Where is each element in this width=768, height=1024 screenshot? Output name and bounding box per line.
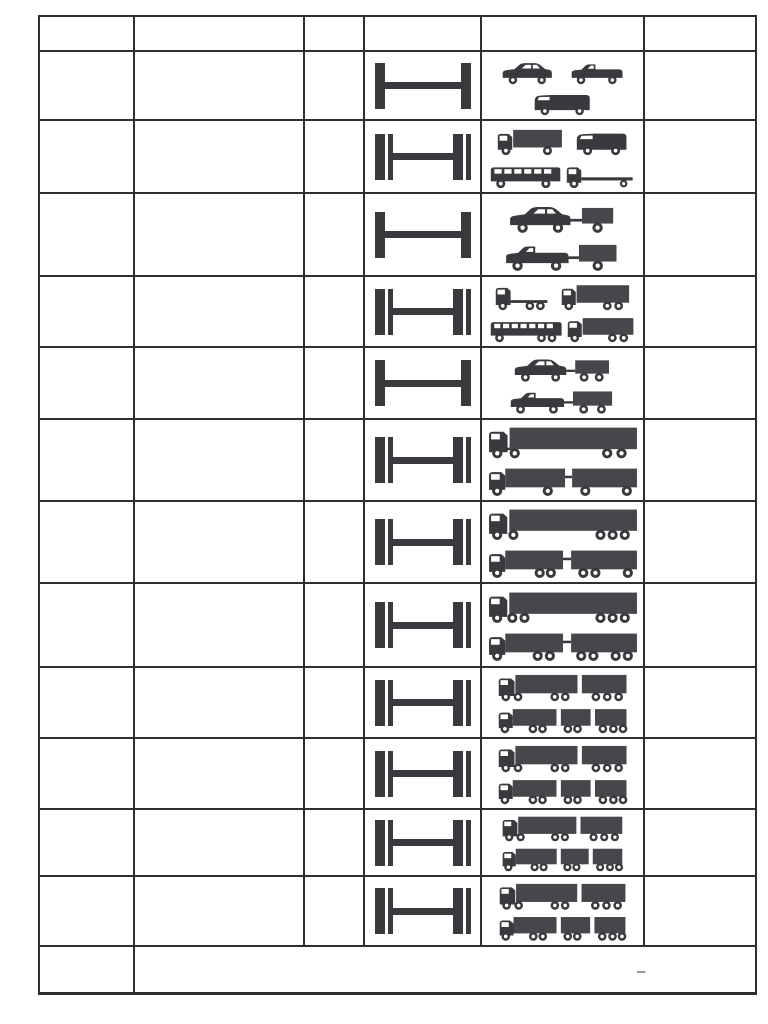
car-with-tandem-trailer-icon	[513, 351, 613, 383]
cell-col1	[40, 810, 135, 875]
cell-col3	[305, 121, 365, 192]
road-train-truck-icon	[501, 843, 624, 873]
footer-cell-1	[40, 947, 135, 992]
vehicle-pictogram-line	[485, 588, 640, 624]
truck-3axle-icon	[566, 312, 636, 344]
vehicle-pictogram-cell	[482, 277, 645, 346]
axle-diagram-cell	[365, 194, 482, 275]
classification-row-9	[40, 668, 755, 739]
truck-with-trailer-6axle-icon	[487, 626, 639, 662]
single-axle-pair-diagram	[375, 360, 471, 406]
cell-col2	[135, 502, 305, 582]
cell-col3	[305, 739, 365, 808]
vehicle-pictogram-line	[485, 543, 640, 579]
vehicle-pictogram-cell	[482, 420, 645, 500]
header-cell-vehicles	[482, 17, 645, 50]
classification-row-7	[40, 502, 755, 584]
cell-col6	[645, 277, 755, 346]
header-cell-6	[645, 17, 755, 50]
cell-col3	[305, 584, 365, 666]
double-axle-pair-diagram	[375, 820, 471, 866]
vehicle-pictogram-line	[485, 703, 640, 735]
road-train-truck-icon	[498, 911, 627, 942]
cell-col3	[305, 502, 365, 582]
cell-col2	[135, 739, 305, 808]
classification-row-5	[40, 348, 755, 420]
cell-col1	[40, 277, 135, 346]
axle-diagram-cell	[365, 52, 482, 119]
cell-col6	[645, 52, 755, 119]
vehicle-pictogram-line	[485, 626, 640, 662]
road-train-semitrailer-icon	[498, 880, 627, 911]
cell-col6	[645, 584, 755, 666]
cell-col3	[305, 668, 365, 737]
vehicle-pictogram-cell	[482, 502, 645, 582]
road-train-semitrailer-icon	[497, 742, 628, 774]
axle-diagram-cell	[365, 877, 482, 945]
double-axle-pair-diagram	[375, 751, 471, 797]
cell-col2	[135, 668, 305, 737]
vehicle-pictogram-line	[485, 911, 640, 942]
scanned-classification-form-page: –	[0, 0, 768, 1024]
axle-diagram-cell	[365, 121, 482, 192]
road-train-truck-icon	[497, 703, 628, 735]
cell-col6	[645, 348, 755, 418]
classification-row-8	[40, 584, 755, 668]
vehicle-pictogram-line	[485, 312, 640, 344]
header-cell-axle	[365, 17, 482, 50]
vehicle-pictogram-cell	[482, 739, 645, 808]
vehicle-pictogram-cell	[482, 121, 645, 192]
classification-row-1	[40, 52, 755, 121]
vehicle-pictogram-line	[485, 235, 640, 273]
passenger-car-icon	[501, 55, 555, 86]
vehicle-pictogram-cell	[482, 584, 645, 666]
double-axle-pair-diagram	[375, 888, 471, 934]
axle-diagram-cell	[365, 668, 482, 737]
classification-row-11	[40, 810, 755, 877]
double-axle-pair-diagram	[375, 519, 471, 565]
vehicle-pictogram-line	[485, 351, 640, 383]
cell-col2	[135, 194, 305, 275]
double-axle-pair-diagram	[375, 680, 471, 726]
vehicle-pictogram-cell	[482, 877, 645, 945]
minibus-icon	[489, 157, 561, 190]
van-icon	[533, 86, 592, 117]
car-with-trailer-icon	[508, 197, 616, 235]
vehicle-pictogram-cell	[482, 348, 645, 418]
classification-row-6	[40, 420, 755, 502]
cell-col3	[305, 277, 365, 346]
truck-with-trailer-4axle-icon	[487, 461, 639, 497]
cell-col1	[40, 502, 135, 582]
classification-row-3	[40, 194, 755, 277]
cell-col2	[135, 810, 305, 875]
pickup-with-trailer-icon	[504, 235, 621, 273]
vehicle-pictogram-line	[485, 774, 640, 806]
cell-col2	[135, 277, 305, 346]
vehicle-pictogram-line	[485, 55, 640, 86]
header-cell-3	[305, 17, 365, 50]
axle-diagram-cell	[365, 277, 482, 346]
cell-col2	[135, 584, 305, 666]
cell-col3	[305, 194, 365, 275]
road-train-truck-icon	[497, 774, 628, 806]
tractor-unit-3axle-icon	[494, 280, 552, 312]
axle-diagram-cell	[365, 584, 482, 666]
cell-col3	[305, 877, 365, 945]
axle-diagram-cell	[365, 810, 482, 875]
cell-col2	[135, 877, 305, 945]
vehicle-pictogram-cell	[482, 194, 645, 275]
cell-col3	[305, 810, 365, 875]
vehicle-pictogram-cell	[482, 52, 645, 119]
vehicle-pictogram-line	[485, 383, 640, 415]
semitrailer-truck-4axle-icon	[487, 423, 639, 460]
cell-col1	[40, 121, 135, 192]
vehicle-pictogram-line	[485, 742, 640, 774]
classification-row-12	[40, 877, 755, 947]
pickup-with-tandem-trailer-icon	[509, 383, 616, 415]
classification-row-10	[40, 739, 755, 810]
footer-row: –	[40, 947, 755, 992]
header-row	[40, 17, 755, 52]
double-axle-pair-diagram	[375, 134, 471, 180]
bus-3axle-icon	[489, 312, 563, 344]
cell-col1	[40, 584, 135, 666]
vehicle-pictogram-line	[485, 124, 640, 157]
cell-col6	[645, 810, 755, 875]
light-box-truck-icon	[496, 124, 565, 157]
double-axle-pair-diagram	[375, 437, 471, 483]
semitrailer-truck-6axle-icon	[487, 588, 639, 624]
cell-col2	[135, 121, 305, 192]
double-axle-pair-diagram	[375, 289, 471, 335]
classification-row-2	[40, 121, 755, 194]
vehicle-classification-table: –	[38, 15, 757, 995]
cell-col3	[305, 420, 365, 500]
road-train-semitrailer-icon	[501, 813, 624, 843]
vehicle-pictogram-line	[485, 461, 640, 497]
cell-col6	[645, 877, 755, 945]
vehicle-pictogram-line	[485, 280, 640, 312]
semitrailer-truck-5axle-icon	[487, 505, 639, 541]
cell-col6	[645, 739, 755, 808]
vehicle-pictogram-line	[485, 86, 640, 117]
cell-col2	[135, 52, 305, 119]
axle-diagram-cell	[365, 502, 482, 582]
road-train-semitrailer-icon	[497, 671, 628, 703]
delivery-van-icon	[575, 124, 629, 157]
cell-col1	[40, 194, 135, 275]
cell-col1	[40, 739, 135, 808]
vehicle-pictogram-line	[485, 843, 640, 873]
header-cell-1	[40, 17, 135, 50]
cell-col6	[645, 668, 755, 737]
flatbed-truck-icon	[565, 157, 635, 190]
cell-col2	[135, 348, 305, 418]
cell-col2	[135, 420, 305, 500]
cell-col1	[40, 348, 135, 418]
vehicle-pictogram-line	[485, 880, 640, 911]
cell-col1	[40, 668, 135, 737]
vehicle-pictogram-line	[485, 813, 640, 843]
cell-col1	[40, 52, 135, 119]
axle-diagram-cell	[365, 420, 482, 500]
cell-col3	[305, 348, 365, 418]
truck-with-trailer-5axle-icon	[487, 543, 639, 579]
classification-row-4	[40, 277, 755, 348]
box-truck-3axle-icon	[560, 280, 632, 312]
vehicle-pictogram-line	[485, 157, 640, 190]
convertible-car-icon	[570, 55, 624, 86]
cell-col6	[645, 502, 755, 582]
cell-col1	[40, 877, 135, 945]
header-cell-2	[135, 17, 305, 50]
footer-merged-cell: –	[135, 947, 755, 992]
cell-col3	[305, 52, 365, 119]
cell-col6	[645, 420, 755, 500]
cell-col6	[645, 121, 755, 192]
vehicle-pictogram-line	[485, 671, 640, 703]
single-axle-pair-diagram	[375, 63, 471, 109]
single-axle-pair-diagram	[375, 212, 471, 258]
vehicle-pictogram-cell	[482, 668, 645, 737]
cell-col6	[645, 194, 755, 275]
double-axle-pair-diagram	[375, 602, 471, 648]
cell-col1	[40, 420, 135, 500]
axle-diagram-cell	[365, 348, 482, 418]
footer-dash-mark: –	[637, 963, 646, 980]
axle-diagram-cell	[365, 739, 482, 808]
vehicle-pictogram-line	[485, 197, 640, 235]
vehicle-pictogram-line	[485, 423, 640, 460]
vehicle-pictogram-line	[485, 505, 640, 541]
vehicle-pictogram-cell	[482, 810, 645, 875]
